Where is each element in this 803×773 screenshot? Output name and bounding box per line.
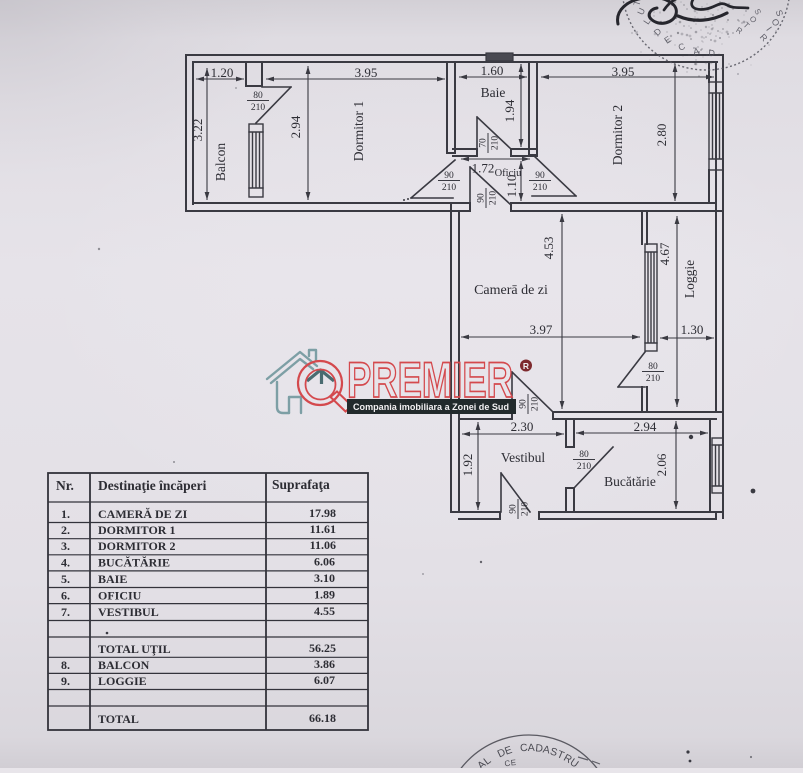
- svg-text:3.: 3.: [61, 539, 70, 553]
- svg-text:1.72: 1.72: [472, 161, 495, 176]
- svg-text:210: 210: [442, 183, 457, 193]
- svg-text:5.: 5.: [61, 572, 70, 586]
- svg-text:3.86: 3.86: [314, 657, 335, 671]
- svg-text:70: 70: [479, 138, 489, 148]
- svg-text:3.97: 3.97: [530, 322, 553, 337]
- svg-text:6.06: 6.06: [314, 555, 335, 569]
- svg-text:R: R: [523, 361, 529, 371]
- svg-text:210: 210: [577, 462, 592, 472]
- svg-text:56.25: 56.25: [309, 641, 336, 655]
- svg-text:E: E: [510, 758, 516, 768]
- svg-text:DORMITOR 1: DORMITOR 1: [98, 523, 175, 537]
- svg-text:DORMITOR 2: DORMITOR 2: [98, 539, 175, 553]
- svg-text:1.30: 1.30: [681, 322, 704, 337]
- svg-text:90: 90: [519, 399, 529, 409]
- svg-text:1.89: 1.89: [314, 588, 335, 602]
- svg-text:1.92: 1.92: [460, 454, 475, 477]
- svg-text:80: 80: [648, 362, 658, 372]
- svg-text:4.67: 4.67: [657, 242, 672, 265]
- svg-text:9.: 9.: [61, 674, 70, 688]
- svg-text:210: 210: [491, 136, 501, 151]
- svg-text:6.07: 6.07: [314, 673, 335, 687]
- svg-text:210: 210: [531, 397, 541, 412]
- svg-text:BUCĂTĂRIE: BUCĂTĂRIE: [98, 556, 170, 570]
- svg-text:Bucătărie: Bucătărie: [604, 474, 656, 489]
- svg-text:4.55: 4.55: [314, 604, 335, 618]
- svg-text:TOTAL: TOTAL: [98, 712, 139, 726]
- svg-text:17.98: 17.98: [309, 506, 336, 520]
- svg-text:11.61: 11.61: [310, 522, 336, 536]
- svg-text:1.60: 1.60: [481, 63, 504, 78]
- svg-text:210: 210: [521, 502, 531, 517]
- svg-text:2.: 2.: [61, 523, 70, 537]
- svg-text:OFICIU: OFICIU: [98, 589, 142, 603]
- svg-text:2.80: 2.80: [654, 124, 669, 147]
- svg-text:2.30: 2.30: [511, 419, 534, 434]
- svg-text:7.: 7.: [61, 605, 70, 619]
- svg-text:BALCON: BALCON: [98, 658, 150, 672]
- svg-text:90: 90: [444, 171, 454, 181]
- svg-text:1.20: 1.20: [211, 65, 234, 80]
- svg-text:Baie: Baie: [481, 85, 506, 100]
- svg-text:210: 210: [489, 191, 499, 206]
- svg-text:Camerā de zi: Camerā de zi: [474, 283, 548, 298]
- svg-text:3.22: 3.22: [190, 119, 205, 142]
- svg-text:210: 210: [646, 374, 661, 384]
- svg-text:210: 210: [251, 103, 266, 113]
- svg-text:66.18: 66.18: [309, 711, 336, 725]
- svg-text:2.94: 2.94: [634, 419, 657, 434]
- svg-text:VESTIBUL: VESTIBUL: [98, 605, 159, 619]
- svg-text:Vestibul: Vestibul: [501, 450, 546, 465]
- svg-text:90: 90: [477, 193, 487, 203]
- svg-text:TOTAL UŢIL: TOTAL UŢIL: [98, 642, 171, 656]
- svg-text:80: 80: [579, 450, 589, 460]
- svg-text:3.95: 3.95: [612, 64, 635, 79]
- svg-text:90: 90: [535, 171, 545, 181]
- svg-text:80: 80: [253, 91, 263, 101]
- svg-text:BAIE: BAIE: [98, 572, 127, 586]
- svg-text:1.: 1.: [61, 507, 70, 521]
- svg-text:Suprafaţa: Suprafaţa: [272, 477, 330, 492]
- svg-text:Balcon: Balcon: [213, 143, 228, 181]
- svg-text:Oficiu: Oficiu: [495, 168, 523, 179]
- svg-text:Compania imobiliara a Zonei de: Compania imobiliara a Zonei de Sud: [353, 402, 509, 413]
- svg-text:90: 90: [509, 504, 519, 514]
- svg-text:210: 210: [533, 183, 548, 193]
- svg-text:2.06: 2.06: [654, 453, 669, 476]
- svg-text:3.95: 3.95: [355, 65, 378, 80]
- svg-text:CAMERĂ DE ZI: CAMERĂ DE ZI: [98, 507, 188, 521]
- svg-text:2.94: 2.94: [288, 115, 303, 138]
- svg-text:A: A: [528, 742, 535, 754]
- svg-text:4.53: 4.53: [541, 237, 556, 260]
- svg-text:1.94: 1.94: [502, 99, 517, 122]
- svg-text:Loggie: Loggie: [682, 260, 697, 298]
- svg-text:4.: 4.: [61, 556, 70, 570]
- svg-text:Dormitor 1: Dormitor 1: [351, 101, 366, 161]
- svg-text:11.06: 11.06: [310, 538, 336, 552]
- svg-text:Destinaţie încăperi: Destinaţie încăperi: [98, 478, 207, 493]
- svg-text:3.10: 3.10: [314, 571, 335, 585]
- svg-text:8.: 8.: [61, 658, 70, 672]
- svg-text:LOGGIE: LOGGIE: [98, 674, 147, 688]
- svg-text:6.: 6.: [61, 589, 70, 603]
- svg-text:Nr.: Nr.: [56, 478, 74, 493]
- svg-text:Dormitor 2: Dormitor 2: [610, 105, 625, 165]
